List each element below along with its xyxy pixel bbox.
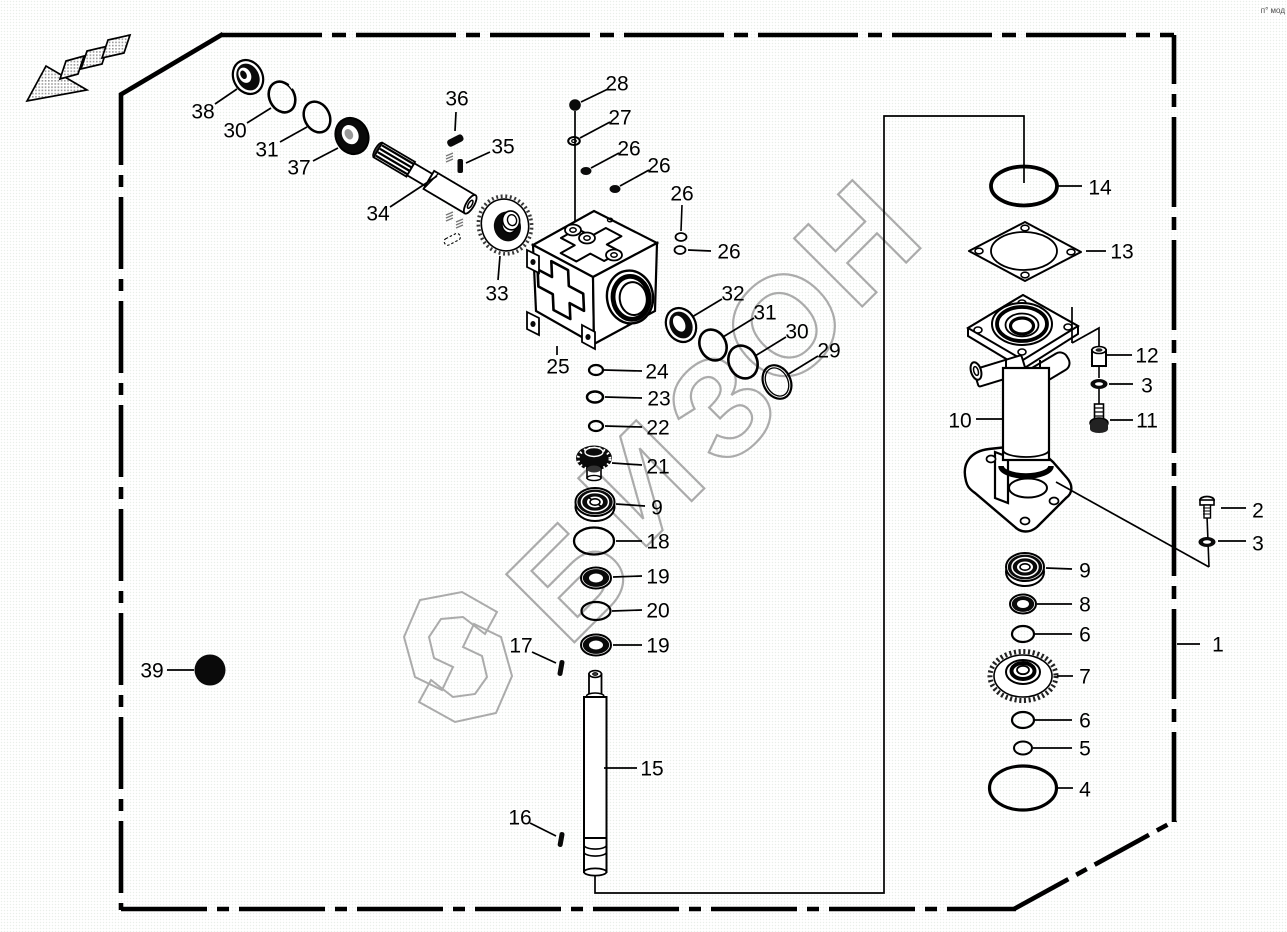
svg-text:25: 25 [546, 356, 569, 379]
svg-text:9: 9 [1079, 560, 1091, 583]
svg-text:30: 30 [223, 120, 246, 143]
svg-text:34: 34 [366, 203, 390, 226]
svg-text:23: 23 [647, 388, 670, 411]
svg-text:24: 24 [645, 361, 669, 384]
svg-text:39: 39 [140, 660, 163, 683]
svg-text:35: 35 [491, 136, 514, 159]
svg-text:26: 26 [617, 138, 640, 161]
svg-text:20: 20 [646, 600, 669, 623]
svg-text:33: 33 [485, 283, 508, 306]
svg-text:31: 31 [753, 302, 776, 325]
svg-text:37: 37 [287, 157, 310, 180]
svg-text:21: 21 [646, 456, 669, 479]
svg-text:31: 31 [255, 139, 278, 162]
svg-text:26: 26 [647, 155, 670, 178]
svg-text:7: 7 [1079, 666, 1091, 689]
svg-text:5: 5 [1079, 738, 1091, 761]
svg-text:3: 3 [1252, 533, 1264, 556]
svg-text:27: 27 [608, 107, 631, 130]
svg-text:1: 1 [1212, 634, 1224, 657]
svg-text:36: 36 [445, 88, 468, 111]
svg-text:14: 14 [1088, 177, 1112, 200]
svg-text:26: 26 [717, 241, 740, 264]
svg-text:22: 22 [646, 417, 669, 440]
svg-text:28: 28 [605, 73, 628, 96]
svg-text:26: 26 [670, 183, 693, 206]
svg-text:3: 3 [1141, 375, 1153, 398]
svg-text:11: 11 [1136, 410, 1158, 433]
svg-text:19: 19 [646, 635, 669, 658]
svg-text:6: 6 [1079, 710, 1091, 733]
svg-text:4: 4 [1079, 779, 1091, 802]
svg-text:19: 19 [646, 566, 669, 589]
svg-text:12: 12 [1135, 345, 1158, 368]
svg-text:17: 17 [509, 635, 532, 658]
svg-text:18: 18 [646, 531, 669, 554]
svg-text:9: 9 [651, 497, 663, 520]
svg-text:2: 2 [1252, 500, 1264, 523]
svg-text:16: 16 [508, 807, 531, 830]
svg-text:30: 30 [785, 321, 808, 344]
svg-text:13: 13 [1110, 241, 1133, 264]
svg-text:п° мод: п° мод [1261, 6, 1286, 15]
svg-text:29: 29 [817, 340, 840, 363]
svg-text:8: 8 [1079, 594, 1091, 617]
svg-text:32: 32 [721, 283, 744, 306]
svg-text:10: 10 [948, 410, 971, 433]
svg-text:6: 6 [1079, 624, 1091, 647]
svg-text:15: 15 [640, 758, 663, 781]
svg-text:38: 38 [191, 101, 214, 124]
